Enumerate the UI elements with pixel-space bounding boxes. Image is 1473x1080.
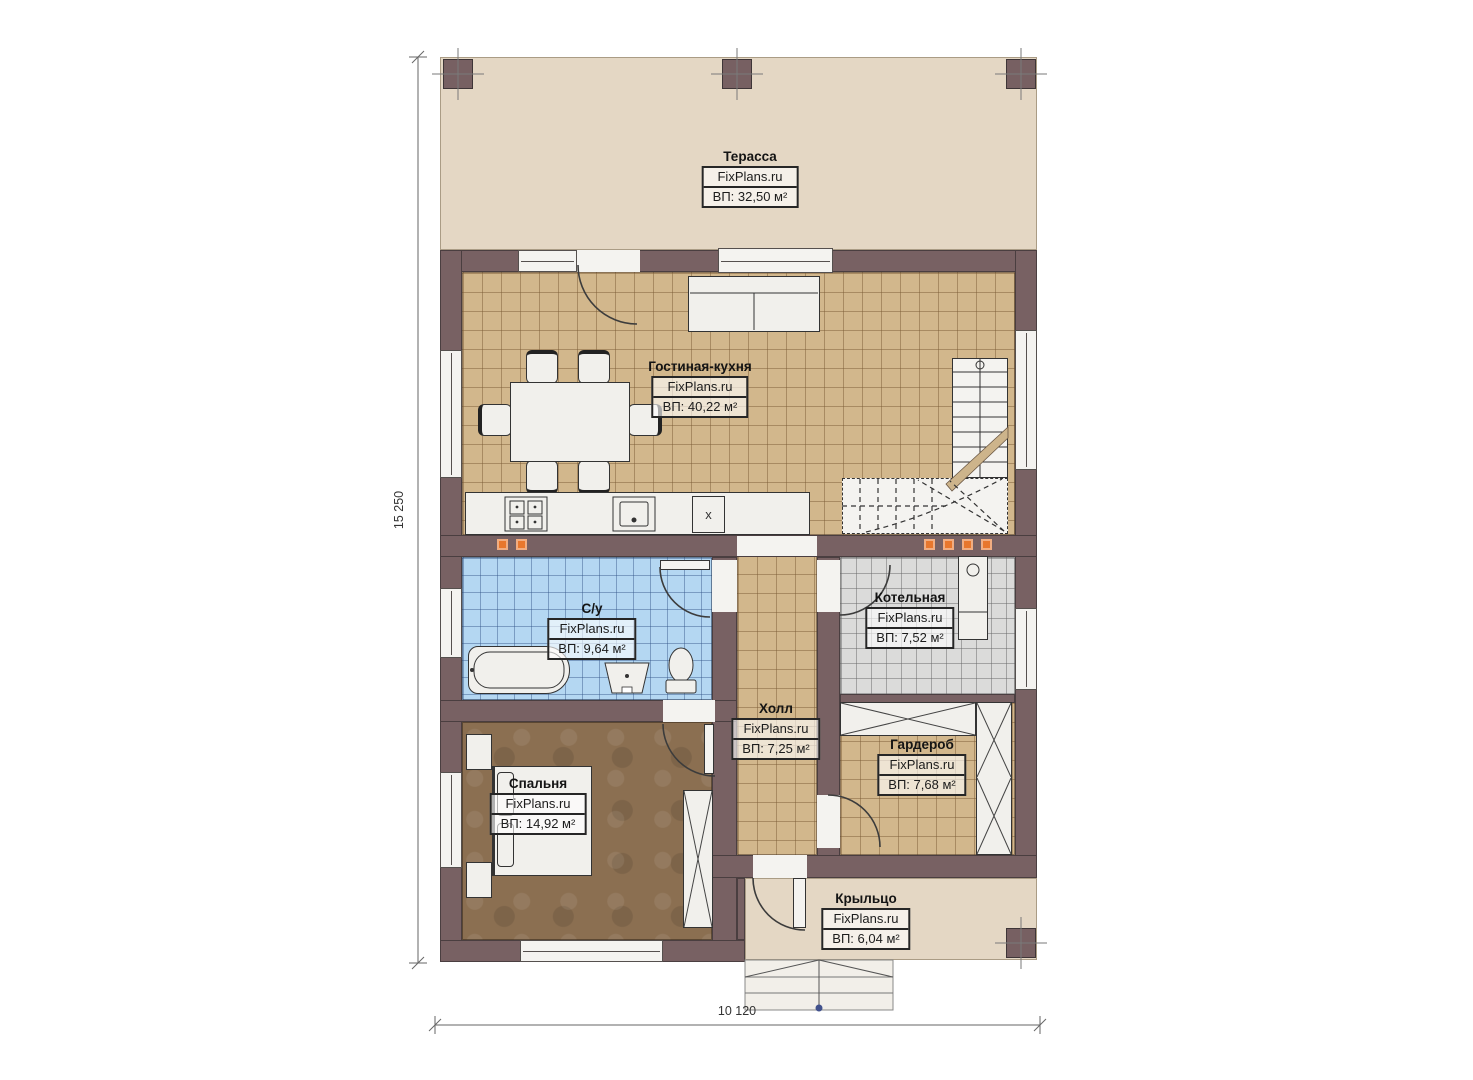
room-area: ВП: 9,64 м² [549,640,634,658]
room-label-box: FixPlans.ru ВП: 40,22 м² [652,376,749,418]
stairs-upper-flight [952,358,1008,478]
floor-plan-canvas: x [0,0,1473,1080]
brand-watermark: FixPlans.ru [654,378,747,398]
brand-watermark: FixPlans.ru [549,620,634,640]
dining-table [510,382,630,462]
terrace-door-opening [577,250,640,272]
room-name: Крыльцо [821,891,910,906]
bedroom-door-opening [663,700,715,722]
brand-watermark: FixPlans.ru [867,609,952,629]
porch-steps [745,960,893,1012]
vent-marker [943,539,954,550]
window-left-bathroom [440,588,462,658]
column-post [722,59,752,89]
wardrobe-door-opening [817,795,840,848]
room-name: Холл [731,701,820,716]
terrace-label: Терасса FixPlans.ru ВП: 32,50 м² [702,149,799,208]
boiler-unit [958,556,988,640]
vent-marker [924,539,935,550]
window-right-boiler [1015,608,1037,690]
bedroom-door-leaf [704,724,714,774]
room-area: ВП: 7,25 м² [733,740,818,758]
width-dimension-label: 10 120 [718,1004,756,1018]
room-area: ВП: 6,04 м² [823,930,908,948]
room-area: ВП: 14,92 м² [492,815,585,833]
chair [526,350,558,384]
nightstand [466,862,492,898]
window-top-large [718,248,833,273]
boiler-label: Котельная FixPlans.ru ВП: 7,52 м² [865,590,954,649]
nightstand [466,734,492,770]
room-label-box: FixPlans.ru ВП: 6,04 м² [821,908,910,950]
column-post [1006,59,1036,89]
bathroom-door-opening [712,560,737,612]
bathroom-door-leaf [660,560,710,570]
wall-patch-porch-left [737,878,745,940]
porch-label: Крыльцо FixPlans.ru ВП: 6,04 м² [821,891,910,950]
kitchen-x-cabinet: x [692,496,725,533]
room-label-box: FixPlans.ru ВП: 7,25 м² [731,718,820,760]
window-bottom-bedroom [520,940,663,962]
wardrobe-closet-right [976,702,1012,855]
x-cabinet-label: x [705,507,712,522]
brand-watermark: FixPlans.ru [733,720,818,740]
brand-watermark: FixPlans.ru [492,795,585,815]
room-label-box: FixPlans.ru ВП: 7,68 м² [877,754,966,796]
vent-marker [516,539,527,550]
hall-floor [737,535,817,855]
living-kitchen-label: Гостиная-кухня FixPlans.ru ВП: 40,22 м² [648,359,751,418]
room-name: Котельная [865,590,954,605]
room-name: Терасса [702,149,799,164]
bedroom-wardrobe-closet [683,790,713,928]
room-name: Гостиная-кухня [648,359,751,374]
room-label-box: FixPlans.ru ВП: 32,50 м² [702,166,799,208]
room-label-box: FixPlans.ru ВП: 14,92 м² [490,793,587,835]
boiler-door-opening [817,560,840,612]
bedroom-label: Спальня FixPlans.ru ВП: 14,92 м² [490,776,587,835]
wardrobe-label: Гардероб FixPlans.ru ВП: 7,68 м² [877,737,966,796]
chair [478,404,512,436]
chair [578,350,610,384]
room-area: ВП: 40,22 м² [654,398,747,416]
window-left-bedroom [440,772,462,868]
room-name: Спальня [490,776,587,791]
window-left-living [440,350,462,478]
column-post [1006,928,1036,958]
bathroom-label: С/у FixPlans.ru ВП: 9,64 м² [547,601,636,660]
room-name: С/у [547,601,636,616]
room-label-box: FixPlans.ru ВП: 9,64 м² [547,618,636,660]
room-area: ВП: 32,50 м² [704,188,797,206]
brand-watermark: FixPlans.ru [823,910,908,930]
room-area: ВП: 7,68 м² [879,776,964,794]
room-label-box: FixPlans.ru ВП: 7,52 м² [865,607,954,649]
vent-marker [497,539,508,550]
chair [578,460,610,494]
brand-watermark: FixPlans.ru [879,756,964,776]
vent-marker [962,539,973,550]
wardrobe-closet-top [840,702,976,736]
porch-door-opening [753,855,807,878]
window-right-stairs [1015,330,1037,470]
column-post [443,59,473,89]
kitchen-counter [465,492,810,535]
hall-label: Холл FixPlans.ru ВП: 7,25 м² [731,701,820,760]
room-name: Гардероб [877,737,966,752]
porch-door-leaf [793,878,806,928]
chair [526,460,558,494]
hall-passage-opening [737,536,817,556]
height-dimension-label: 15 250 [392,491,406,529]
window-top-small [518,250,577,272]
room-area: ВП: 7,52 м² [867,629,952,647]
vent-marker [981,539,992,550]
brand-watermark: FixPlans.ru [704,168,797,188]
stairs-lower-flight [842,478,1008,534]
sofa [688,276,820,332]
